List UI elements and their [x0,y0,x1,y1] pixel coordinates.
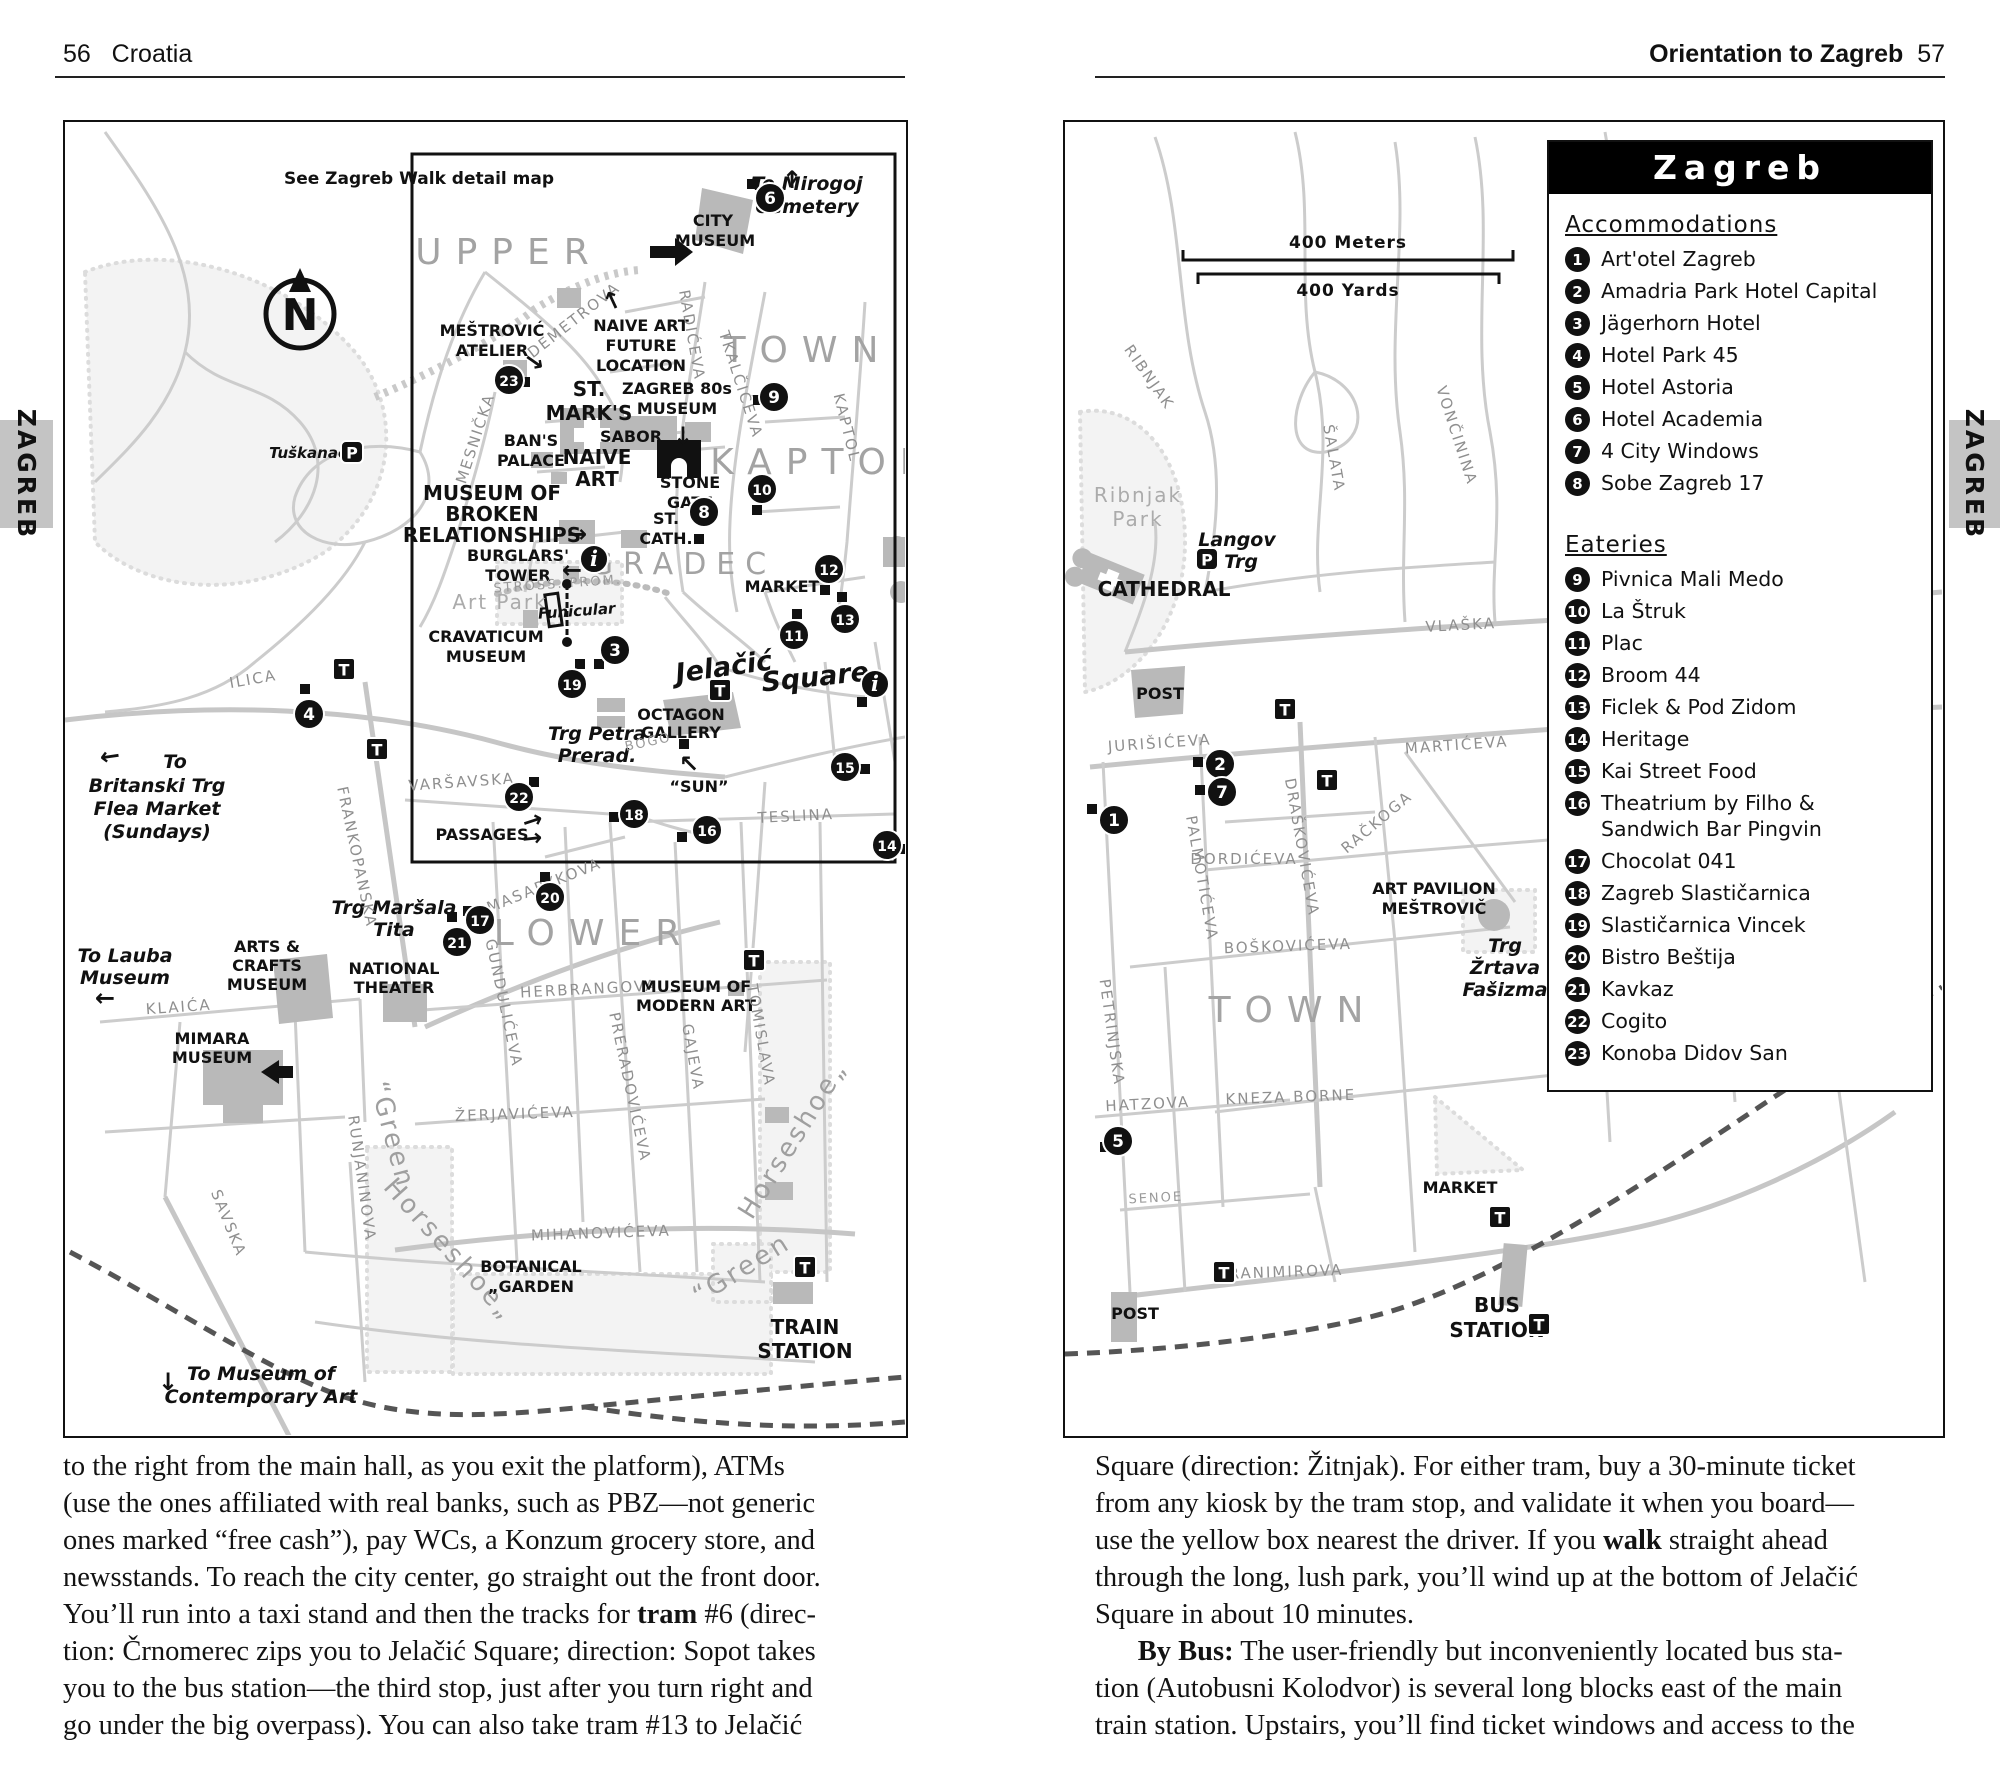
legend-item-label: Amadria Park Hotel Capital [1601,278,1877,304]
legend-gap [1565,502,1917,528]
map-label: ŽERJAVIĆEVA [455,1102,575,1125]
map-label: LOWER [494,913,694,954]
map-label: MEŠTROVIĆ [440,321,545,340]
legend-item-number: 6 [1565,407,1590,432]
map-marker-number: 12 [819,563,838,579]
chapter-title: Croatia [112,40,193,68]
icon-letter: T [800,1259,811,1278]
map-label: MUSEUM [637,399,717,418]
legend-item: 14Heritage [1565,726,1917,752]
body-line: Square in about 10 minutes. [1095,1596,1947,1633]
map-marker-number: 11 [784,629,803,645]
map-marker-number: 16 [697,824,716,840]
legend-item-label: Jägerhorn Hotel [1601,310,1761,336]
legend-item-number: 14 [1565,727,1590,752]
legend-item: 22Cogito [1565,1008,1917,1034]
map-label: VONČININA [1432,383,1482,487]
map-label: MIHANOVIĆEVA [531,1221,671,1245]
location-square [694,534,704,544]
map-marker-number: 6 [764,189,776,209]
legend-item: 3Jägerhorn Hotel [1565,310,1917,336]
map-label: Britanski Trg [89,775,226,797]
legend-item-label: Konoba Didov San [1601,1040,1788,1066]
legend-item: 1Art'otel Zagreb [1565,246,1917,272]
map-label: ST. [653,509,679,528]
map-label: To Lauba [77,945,172,967]
location-square [529,777,539,787]
icon-letter: P [346,444,358,463]
body-line: You’ll run into a taxi stand and then th… [63,1596,911,1633]
location-square [300,684,310,694]
map-label: NATIONAL [349,959,440,978]
legend-item: 9Pivnica Mali Medo [1565,566,1917,592]
body-line: (use the ones affiliated with real banks… [63,1485,911,1522]
map-label: TOWN [1208,990,1378,1031]
map-label: NAIVE [563,445,632,469]
body-line: go under the big overpass). You can also… [63,1707,911,1744]
location-square [609,812,619,822]
map-marker-number: 22 [509,791,528,807]
body-line: ones marked “free cash”), pay WCs, a Kon… [63,1522,911,1559]
legend-item-number: 8 [1565,471,1590,496]
icon-letter: T [1322,772,1333,791]
legend-item-label: Cogito [1601,1008,1667,1034]
location-square [857,697,867,707]
map-label: MUSEUM OF [641,977,751,996]
map-label: DRAŠKOVIĆEVA [1281,777,1324,918]
legend-item-label: Kavkaz [1601,976,1674,1002]
legend-item-label: Slastičarnica Vincek [1601,912,1806,938]
icon-letter: T [1495,1209,1506,1228]
legend-item: 15Kai Street Food [1565,758,1917,784]
map-label: CITY [693,211,734,230]
legend-item-number: 18 [1565,881,1590,906]
map-label: ← [95,984,115,1012]
map-label: “SUN” [670,777,729,796]
legend-item-label: La Štruk [1601,598,1686,624]
body-line: from any kiosk by the tram stop, and val… [1095,1485,1947,1522]
map-label: TRAIN [771,1315,840,1339]
map-label: ↓ [673,422,693,450]
location-square [540,872,550,882]
map-label: → [567,520,587,548]
map-label: To Museum of [187,1363,338,1385]
legend-item-label: Hotel Astoria [1601,374,1734,400]
body-line: use the yellow box nearest the driver. I… [1095,1522,1947,1559]
legend-item-label: Kai Street Food [1601,758,1757,784]
legend-item-number: 4 [1565,343,1590,368]
map-marker-number: 23 [499,374,518,390]
map-marker-number: 1 [1108,811,1120,831]
map-label: DORDIĆEVA [1190,849,1297,868]
legend-section-heading: Eateries [1565,532,1917,558]
map-label: MEŠTROVIČ [1382,899,1487,918]
map-label: HATZOVA [1105,1093,1191,1115]
map-label: (Sundays) [103,821,211,843]
icon-letter: T [1280,701,1291,720]
page-number-right: 57 [1917,40,1945,68]
map-label: THEATER [354,978,435,997]
map-label: ↖ [679,750,699,778]
location-square [1195,785,1205,795]
map-label: BUS [1474,1293,1520,1317]
map-label: MUSEUM [172,1048,252,1067]
legend-item-number: 10 [1565,599,1590,624]
legend-item: 12Broom 44 [1565,662,1917,688]
legend-item-label: Art'otel Zagreb [1601,246,1756,272]
icon-letter: i [871,671,879,696]
legend-item-label: Broom 44 [1601,662,1701,688]
location-square [837,592,847,602]
map-label: VARŠAVSKA [408,768,516,794]
map-label: KLAIĆA [145,995,212,1019]
legend-item: 74 City Windows [1565,438,1917,464]
map-marker-number: 17 [470,914,489,930]
body-line: train station. Upstairs, you’ll find tic… [1095,1707,1947,1744]
map-left-zagreb-center: N See Zagreb Walk detail mapUPPERTOWNKAP… [63,120,908,1438]
legend-item: 5Hotel Astoria [1565,374,1917,400]
map-label: Žrtava [1469,956,1540,979]
map-label: POST [1136,684,1184,703]
legend-item: 8Sobe Zagreb 17 [1565,470,1917,496]
icon-letter: i [590,546,598,571]
body-line: tion (Autobusni Kolodvor) is several lon… [1095,1670,1947,1707]
body-line: you to the bus station—the third stop, j… [63,1670,911,1707]
map-marker-number: 21 [447,936,466,952]
map-label: Trg [1224,551,1258,573]
body-text-right: Square (direction: Žitnjak). For either … [1095,1448,1947,1744]
map-label: CRAFTS [232,956,302,975]
map-label: VLAŠKA [1425,613,1496,636]
map-label: Art Park [452,590,547,614]
location-square [594,659,604,669]
page-header-right: Orientation to Zagreb 57 [1095,40,1945,69]
header-rule-left [55,76,905,78]
map-label: „GARDEN [488,1277,574,1296]
map-label: CRAVATICUM [428,627,543,646]
legend-item-label: Heritage [1601,726,1689,752]
map-label: CATH. [639,529,692,548]
legend-item-label: Zagreb Slastičarnica [1601,880,1811,906]
legend-item-label: Plac [1601,630,1643,656]
map-label: Trg Maršala [331,897,456,919]
body-line: By Bus: The user-friendly but inconvenie… [1095,1633,1947,1670]
legend-item-number: 5 [1565,375,1590,400]
icon-letter: T [749,952,760,971]
location-square [1193,757,1203,767]
location-square [820,585,830,595]
legend-item-label: Pivnica Mali Medo [1601,566,1784,592]
legend-item-label: Chocolat 041 [1601,848,1737,874]
body-line: to the right from the main hall, as you … [63,1448,911,1485]
legend-item: 10La Štruk [1565,598,1917,624]
icon-letter: P [1201,551,1213,570]
legend-item-number: 16 [1565,791,1590,816]
map-marker-number: 5 [1112,1132,1124,1152]
guidebook-spread: { "page": { "left_header_num": "56", "le… [0,0,2000,1778]
location-square [747,179,757,189]
location-square [792,609,802,619]
map-label: PETRINJSKA [1096,978,1129,1087]
icon-letter: T [715,682,726,701]
svg-text:N: N [282,290,319,341]
map-label: Flea Market [94,798,222,820]
legend-item-number: 9 [1565,567,1590,592]
map-marker-number: 9 [768,388,780,408]
map-label: BOŠKOVIĆEVA [1223,934,1352,957]
legend-item-label: Hotel Park 45 [1601,342,1739,368]
header-rule-right [1095,76,1945,78]
map-marker-number: 10 [752,483,772,499]
legend-item: 6Hotel Academia [1565,406,1917,432]
legend-item-label: Theatrium by Filho & Sandwich Bar Pingvi… [1601,790,1917,842]
map-label: TESLINA [756,805,834,827]
map-label: MUSEUM [675,231,755,250]
map-label: ART PAVILION [1372,879,1496,898]
map-label: ← [98,741,122,772]
map-label: → [521,823,544,853]
map-label: Museum [80,967,170,989]
map-label: SENOE [1128,1190,1183,1208]
legend-item: 21Kavkaz [1565,976,1917,1002]
legend-item: 2Amadria Park Hotel Capital [1565,278,1917,304]
map-label: ST. [573,377,606,401]
legend-item-number: 3 [1565,311,1590,336]
body-line: newsstands. To reach the city center, go… [63,1559,911,1596]
map-label: PALACE [497,451,565,470]
legend-section-heading: Accommodations [1565,212,1917,238]
map-label: RAČKOGA [1337,787,1416,857]
page-number-left: 56 [63,40,91,68]
legend-item-number: 15 [1565,759,1590,784]
map-label: Ribnjak [1094,483,1182,507]
map-label: RELATIONSHIPS [403,523,581,547]
side-tab-right: ZAGREB [1949,420,2000,528]
map-label: BAN'S [504,431,558,450]
map-marker-number: 7 [1216,783,1228,803]
map-label: Fašizma [1462,979,1547,1001]
section-title: Orientation to Zagreb [1649,40,1903,68]
legend-item-number: 21 [1565,977,1590,1002]
map-label: ILICA [228,666,278,692]
map-label: STONE [660,473,720,492]
body-line: Square (direction: Žitnjak). For either … [1095,1448,1947,1485]
side-tab-left-label: ZAGREB [12,408,41,539]
location-square [679,739,689,749]
location-square [752,505,762,515]
map-label: ART [575,467,619,491]
body-line: through the long, lush park, you’ll wind… [1095,1559,1947,1596]
icon-letter: T [1534,1316,1545,1335]
map-label: FUTURE [605,336,676,355]
location-square [575,659,585,669]
legend-item: 19Slastičarnica Vincek [1565,912,1917,938]
legend-item-number: 1 [1565,247,1590,272]
map-label: PASSAGES [436,825,529,844]
map-label: See Zagreb Walk detail map [284,169,554,189]
legend-item-label: Sobe Zagreb 17 [1601,470,1765,496]
legend-item: 16Theatrium by Filho & Sandwich Bar Ping… [1565,790,1917,842]
map-label: LOCATION [596,356,686,375]
map-label: Park [1112,507,1163,531]
legend-item: 20Bistro Beštija [1565,944,1917,970]
legend-item: 18Zagreb Slastičarnica [1565,880,1917,906]
legend-item-number: 12 [1565,663,1590,688]
map-label: Square [760,656,870,698]
location-square [677,832,687,842]
legend-item-number: 13 [1565,695,1590,720]
location-square [1087,804,1097,814]
icon-letter: T [339,661,350,680]
map-label: MIMARA [175,1029,251,1048]
map-label: MARKET [1423,1178,1498,1197]
map-label: TOWN [723,330,893,371]
map-marker-number: 15 [835,761,854,777]
map-label: Contemporary Art [165,1386,359,1408]
side-tab-left: ZAGREB [0,420,53,528]
map-marker-number: 3 [609,641,621,661]
left-map-canvas: N See Zagreb Walk detail mapUPPERTOWNKAP… [65,122,905,1435]
legend-sections: Accommodations1Art'otel Zagreb2Amadria P… [1549,194,1931,1090]
page-header-left: 56 Croatia [63,40,192,69]
location-square [860,764,870,774]
map-label: MUSEUM [227,975,307,994]
map-marker-number: 8 [698,503,710,523]
map-label: 400 Yards [1296,281,1399,301]
legend-item-number: 22 [1565,1009,1590,1034]
map-label: MUSEUM [446,647,526,666]
legend-item-label: Hotel Academia [1601,406,1763,432]
legend-item-number: 20 [1565,945,1590,970]
map-label: BOTANICAL [480,1257,582,1276]
map-legend: Zagreb Accommodations1Art'otel Zagreb2Am… [1547,140,1933,1092]
legend-item-label: Bistro Beštija [1601,944,1736,970]
map-label: BURGLARS' [467,546,569,565]
map-label: SABOR [600,427,662,446]
map-label: PALMOTIĆEVA [1182,814,1223,942]
map-label: ATELIER [456,341,528,360]
location-square [447,912,457,922]
map-marker-number: 18 [624,808,643,824]
map-marker-number: 14 [877,839,897,855]
icon-letter: T [1219,1264,1230,1283]
map-marker-number: 13 [835,613,854,629]
map-label: MODERN ART [636,996,756,1015]
map-label: KNEZA BORNE [1225,1086,1356,1109]
map-label: CATHEDRAL [1098,577,1231,601]
body-line: tion: Črnomerec zips you to Jelačić Squa… [63,1633,911,1670]
map-label: GAJEVA [678,1022,707,1091]
map-label: KAPTOL [710,442,905,483]
legend-item: 13Ficlek & Pod Zidom [1565,694,1917,720]
map-label: MARKET [745,577,820,596]
legend-item-number: 11 [1565,631,1590,656]
scale-bar [1183,250,1513,284]
map-label: NAIVE ART [593,316,689,335]
side-tab-right-label: ZAGREB [1960,408,1989,539]
map-label: RIBNJAK [1120,341,1178,412]
map-marker-number: 20 [540,891,560,907]
map-marker-number: 4 [303,705,315,725]
map-marker-number: 19 [562,678,581,694]
map-label: OCTAGON [637,705,725,724]
map-label: Tuškanac [269,444,347,462]
legend-item: 23Konoba Didov San [1565,1040,1917,1066]
legend-item-number: 17 [1565,849,1590,874]
map-label: STATION [757,1339,852,1363]
map-label: MARTIĆEVA [1404,731,1509,757]
legend-item-label: Ficlek & Pod Zidom [1601,694,1796,720]
map-marker-number: 2 [1214,755,1226,775]
map-label: MARK'S [546,401,633,425]
map-label: JURIŠIĆEVA [1106,729,1212,755]
legend-item-number: 23 [1565,1041,1590,1066]
legend-title: Zagreb [1549,142,1931,194]
map-label: UPPER [415,232,603,273]
legend-item-number: 7 [1565,439,1590,464]
legend-item-number: 2 [1565,279,1590,304]
body-text-left: to the right from the main hall, as you … [63,1448,911,1744]
legend-item-number: 19 [1565,913,1590,938]
map-label: 400 Meters [1289,233,1407,253]
map-label: ZAGREB 80s [622,379,732,398]
map-label: SAVSKA [207,1187,250,1259]
legend-item: 4Hotel Park 45 [1565,342,1917,368]
legend-item: 17Chocolat 041 [1565,848,1917,874]
map-label: ARTS & [234,937,300,956]
map-label: Trg [1488,935,1522,957]
map-label: POST [1111,1304,1159,1323]
icon-letter: T [372,741,383,760]
legend-item-label: 4 City Windows [1601,438,1759,464]
map-label: To [163,751,187,773]
legend-item: 11Plac [1565,630,1917,656]
